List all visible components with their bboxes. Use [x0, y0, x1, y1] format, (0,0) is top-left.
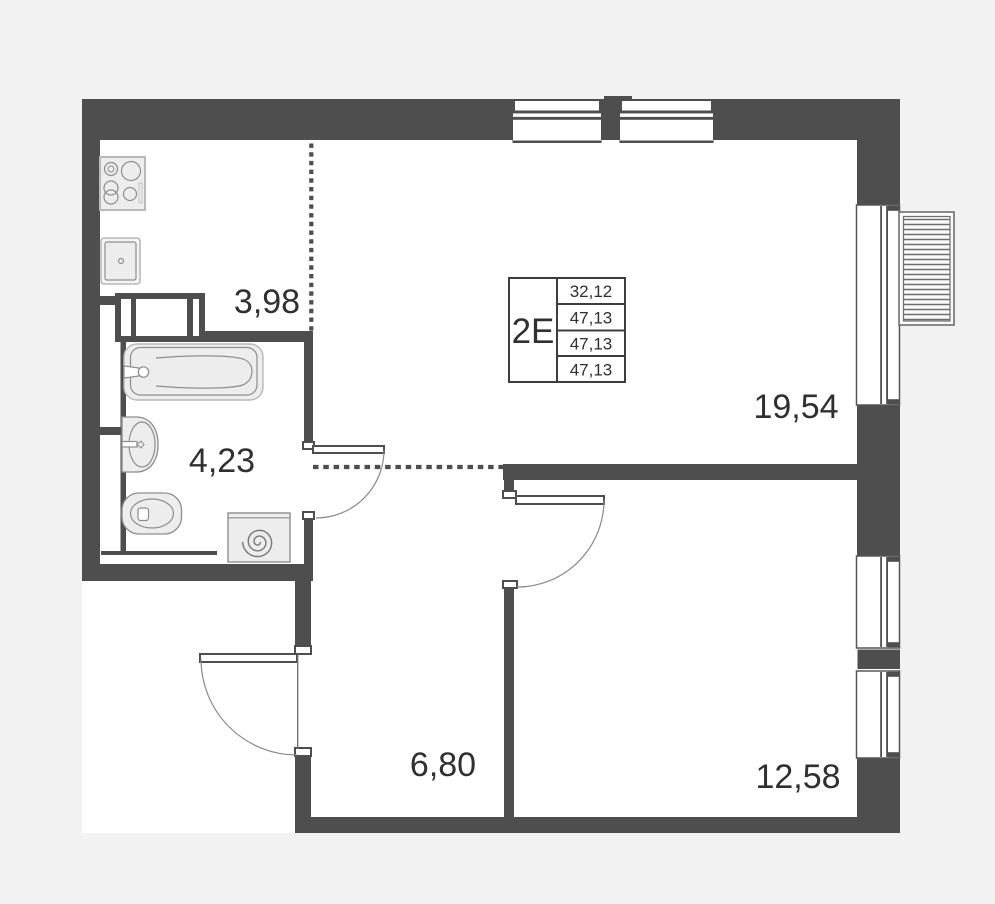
svg-text:3,98: 3,98 — [234, 283, 300, 321]
svg-text:2E: 2E — [512, 312, 555, 351]
svg-text:19,54: 19,54 — [753, 388, 838, 426]
svg-text:4,23: 4,23 — [189, 442, 255, 480]
svg-text:47,13: 47,13 — [570, 335, 613, 354]
svg-text:47,13: 47,13 — [570, 309, 613, 328]
svg-text:47,13: 47,13 — [570, 361, 613, 380]
svg-text:6,80: 6,80 — [410, 746, 476, 784]
svg-text:32,12: 32,12 — [570, 282, 613, 301]
svg-text:12,58: 12,58 — [755, 758, 840, 796]
